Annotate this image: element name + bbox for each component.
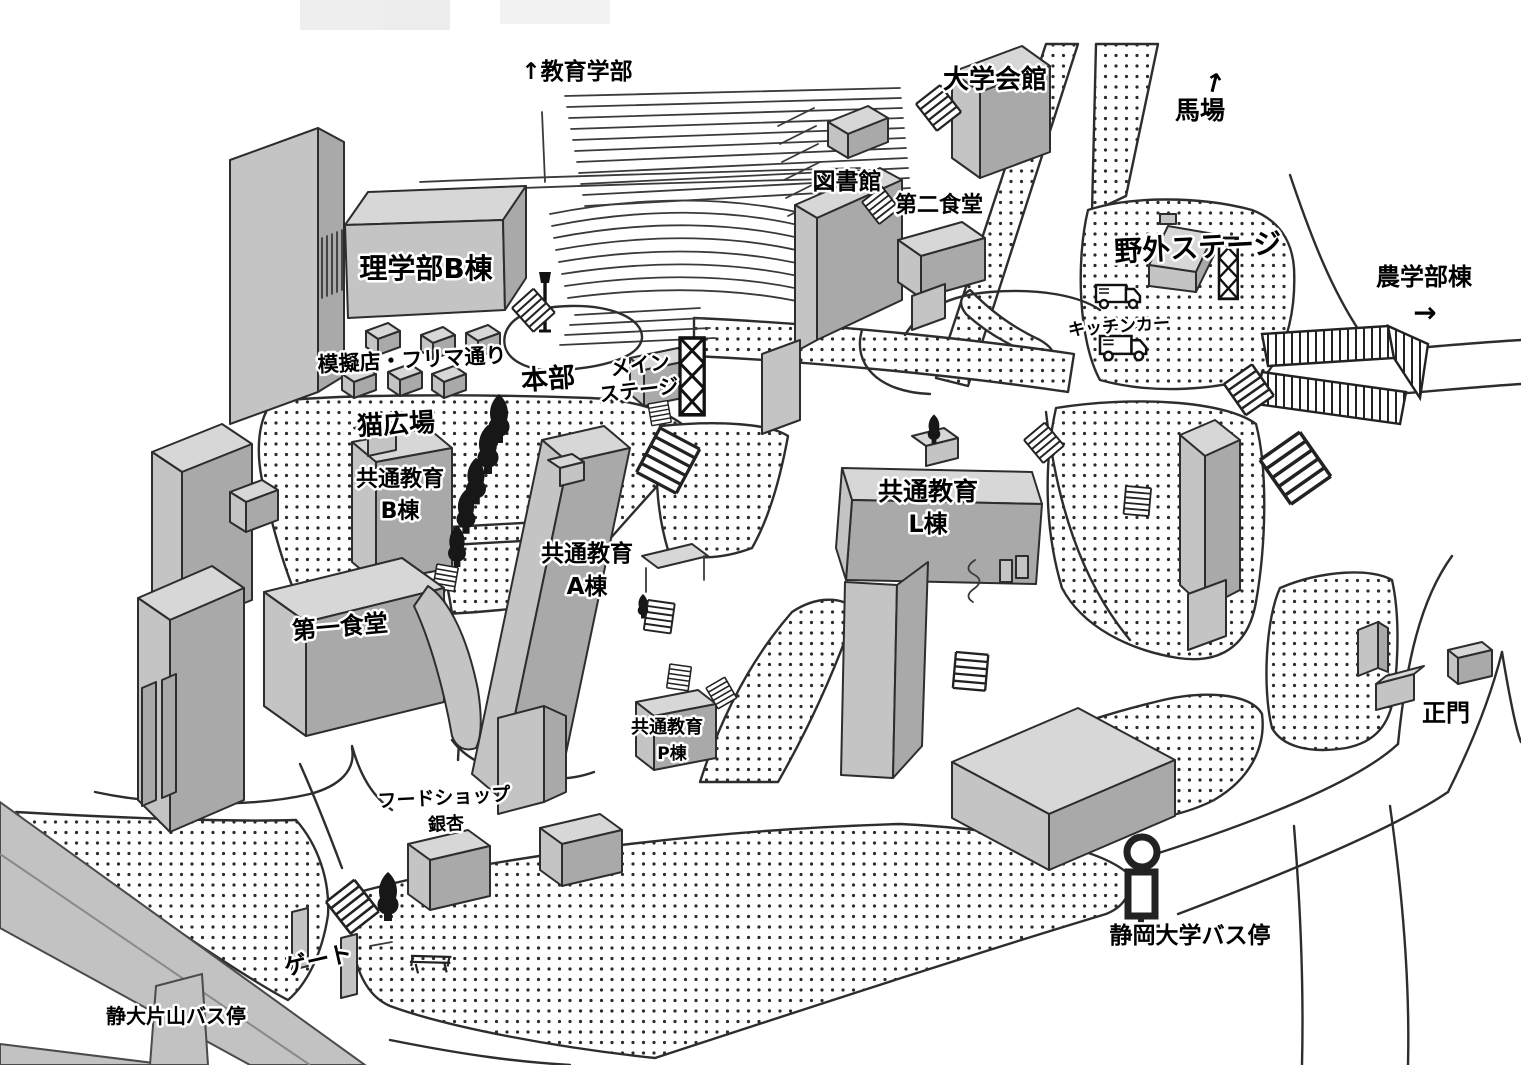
footbridge bbox=[1256, 326, 1428, 424]
label-university-hall: 大学会館 bbox=[943, 64, 1047, 95]
lower-road bbox=[0, 1044, 170, 1065]
scan-artifacts bbox=[300, 0, 610, 30]
label-mock-shop-street: 模擬店・フリマ通り bbox=[317, 343, 507, 377]
building-south-small bbox=[540, 814, 622, 886]
label-univ-bus-stop: 静岡大学バス停 bbox=[1110, 922, 1271, 949]
light-pole bbox=[542, 112, 545, 182]
label-education-faculty: ↑教育学部 bbox=[521, 58, 632, 85]
stairs-icon bbox=[953, 652, 988, 691]
building-northwest bbox=[230, 128, 344, 424]
label-common-ed-l-2: L棟 bbox=[908, 510, 948, 538]
label-common-ed-b-2: B棟 bbox=[381, 498, 421, 524]
label-food-shop-1: フードショップ bbox=[377, 782, 512, 812]
footbridge-turn bbox=[1388, 326, 1428, 398]
label-food-shop-2: 銀杏 bbox=[427, 812, 464, 836]
stairs-icon bbox=[644, 600, 675, 633]
building-food-shop bbox=[408, 830, 490, 910]
label-common-ed-p-1: 共通教育 bbox=[631, 716, 703, 738]
label-main-gate: 正門 bbox=[1422, 699, 1470, 727]
main-gate-structures bbox=[1358, 622, 1492, 710]
stairs-icon bbox=[1124, 486, 1152, 516]
label-common-ed-b-1: 共通教育 bbox=[356, 466, 444, 492]
label-library: 図書館 bbox=[813, 168, 882, 195]
building-library bbox=[762, 106, 902, 434]
footbridge-span-lower bbox=[1256, 372, 1406, 424]
shelter bbox=[642, 544, 708, 592]
label-common-ed-l-1: 共通教育 bbox=[878, 477, 978, 506]
label-common-ed-p-2: P棟 bbox=[657, 743, 687, 764]
stairs-icon bbox=[512, 289, 555, 332]
stage-truss-icon bbox=[680, 338, 704, 415]
buildings-west-unlabeled bbox=[138, 424, 278, 832]
bus-stop-sign-icon bbox=[1122, 837, 1160, 928]
label-common-ed-a-1: 共通教育 bbox=[541, 540, 633, 567]
label-katayama-bus-stop: 静大片山バス停 bbox=[106, 1004, 246, 1028]
stage-speaker bbox=[1160, 214, 1176, 224]
footbridge-span-upper bbox=[1262, 326, 1394, 366]
label-cat-plaza: 猫広場 bbox=[356, 407, 436, 442]
stairs-icon bbox=[648, 401, 671, 426]
label-agriculture-bldg: 農学部棟 bbox=[1376, 263, 1473, 291]
label-agriculture-arrow: → bbox=[1413, 296, 1436, 329]
campus-map-canvas: ↑教育学部 大学会館 ↑ 馬場 図書館 第二食堂 理学部B棟 野外ステージ 農学… bbox=[0, 0, 1521, 1065]
label-science-bldg-b: 理学部B棟 bbox=[359, 252, 493, 285]
label-common-ed-a-2: A棟 bbox=[567, 574, 609, 600]
label-headquarters: 本部 bbox=[520, 361, 576, 397]
stairs-icon bbox=[1260, 432, 1331, 504]
campus-map: ↑教育学部 大学会館 ↑ 馬場 図書館 第二食堂 理学部B棟 野外ステージ 農学… bbox=[0, 0, 1521, 1065]
dotted-strip-2 bbox=[1092, 44, 1158, 212]
label-horse-ground: 馬場 bbox=[1175, 96, 1225, 125]
stairs-icon bbox=[667, 664, 692, 691]
label-second-cafeteria: 第二食堂 bbox=[895, 192, 983, 218]
